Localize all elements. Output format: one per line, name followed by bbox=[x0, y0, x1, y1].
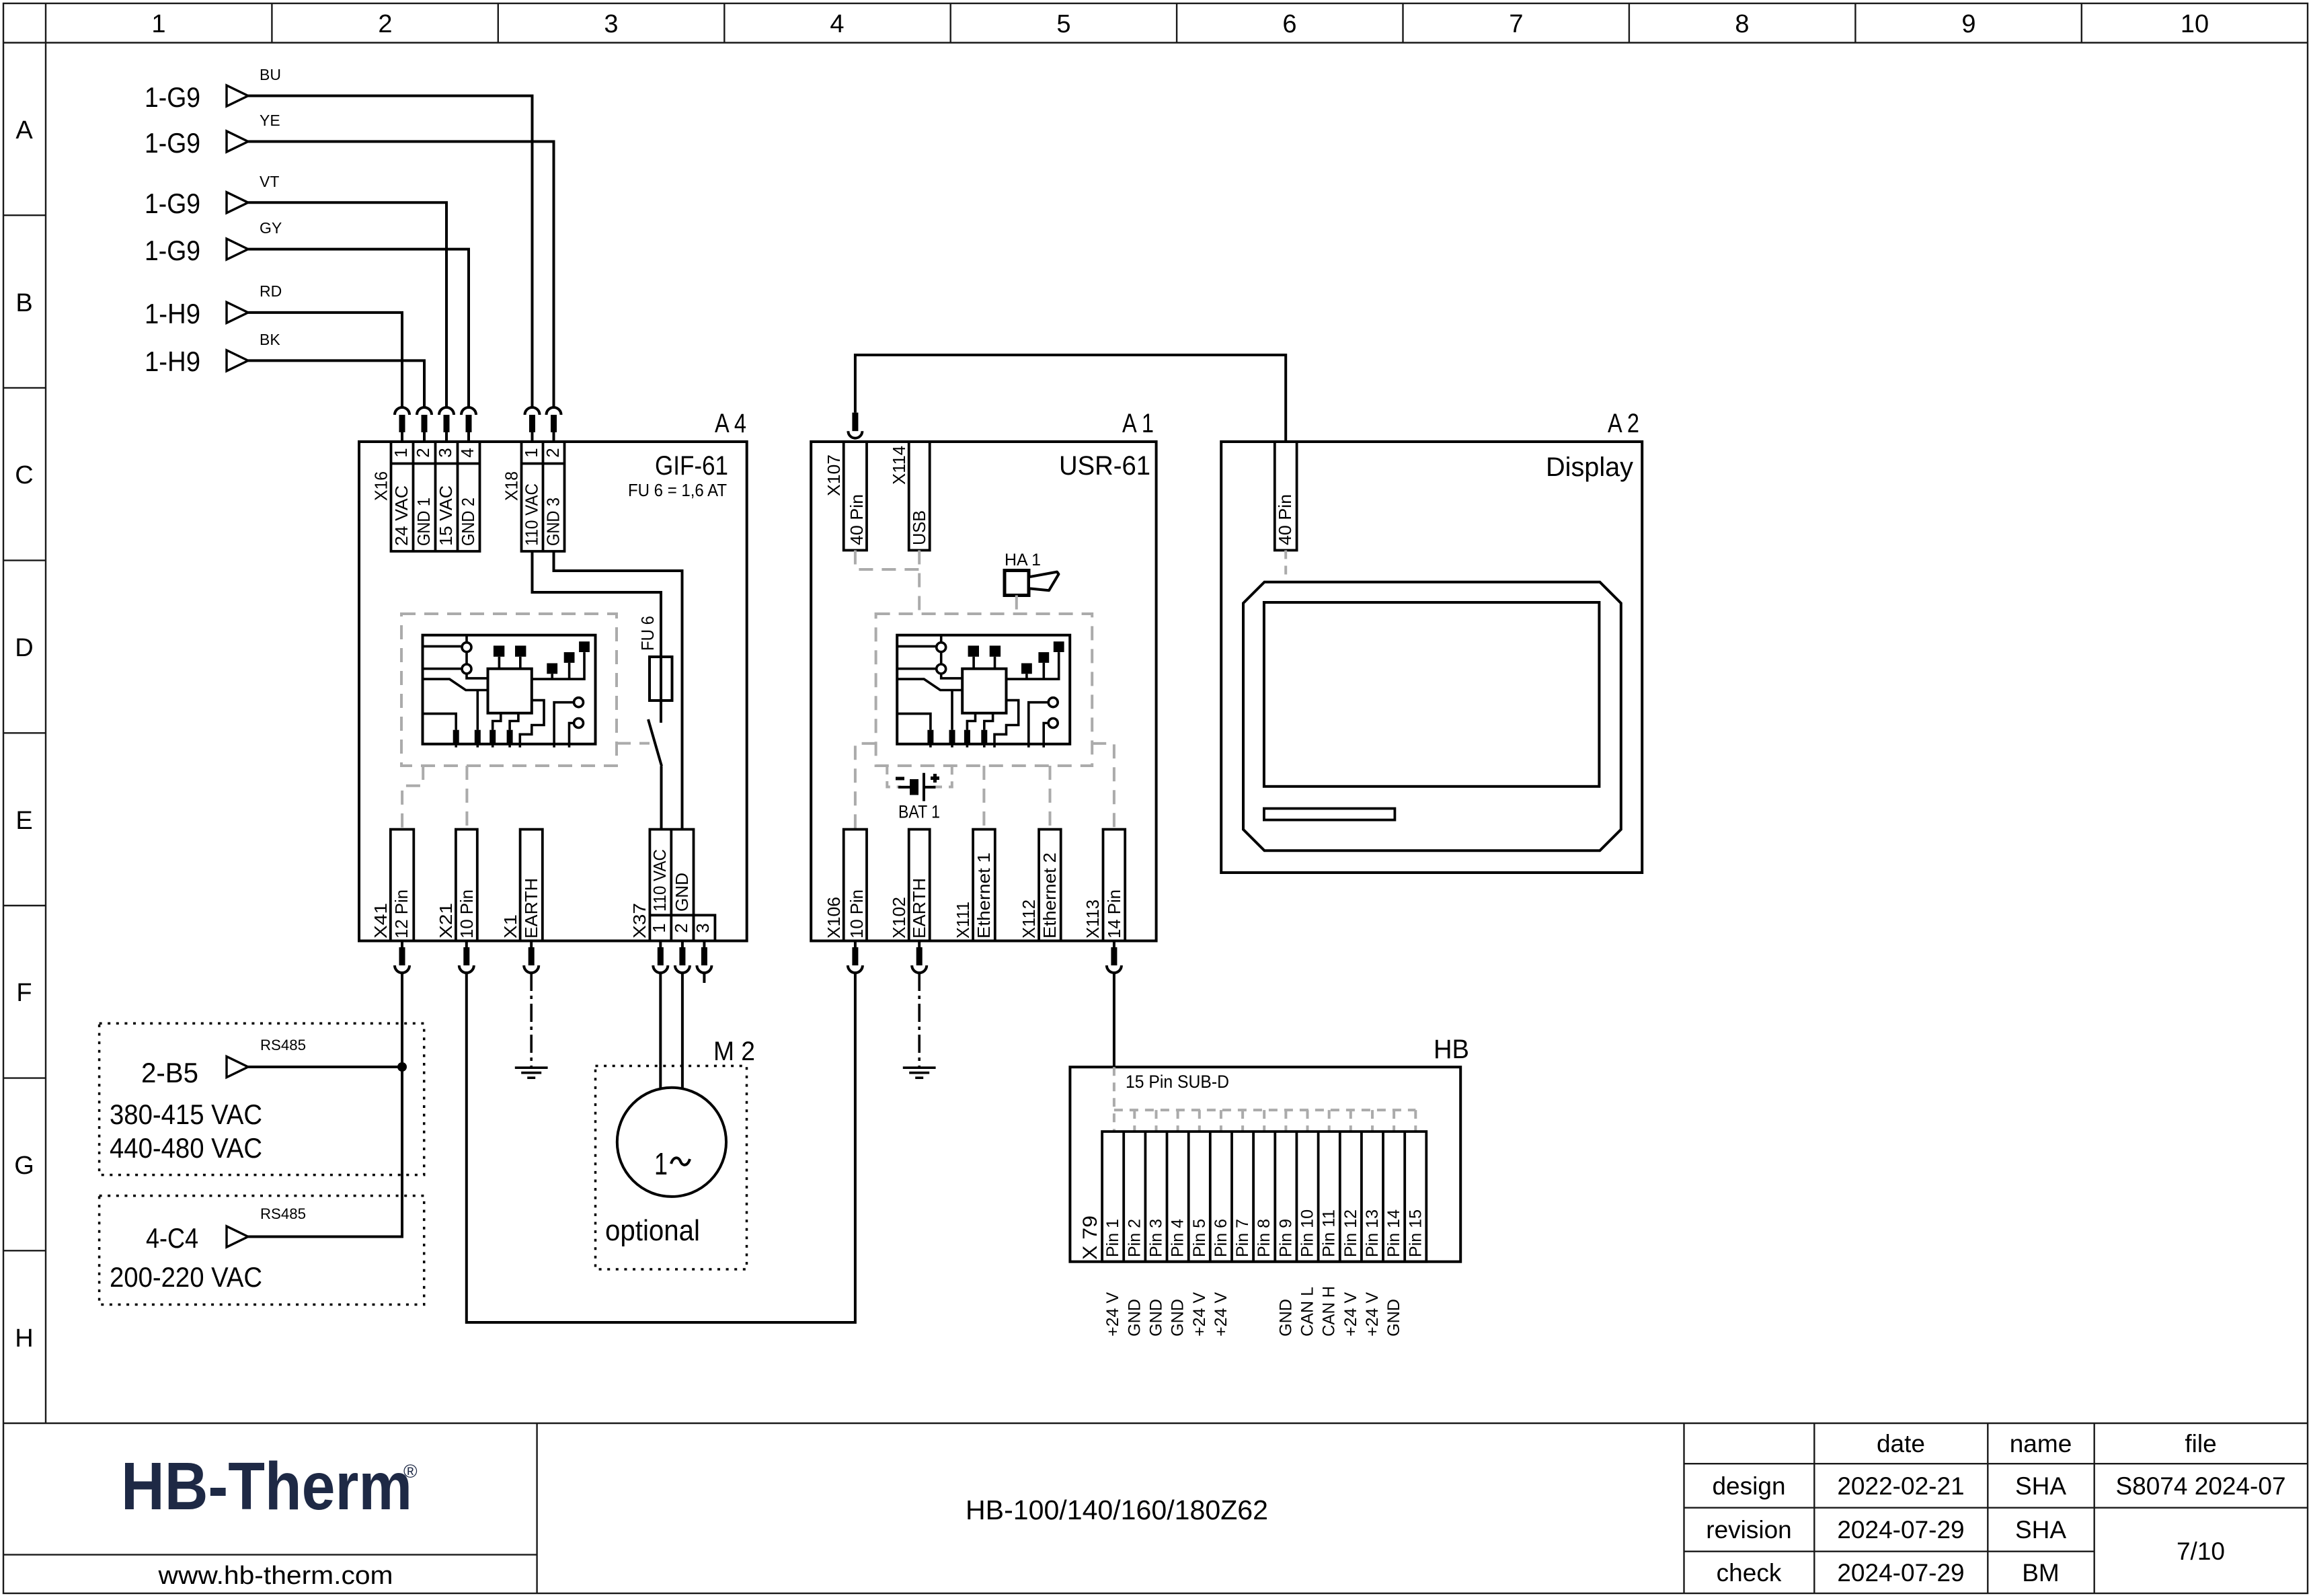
svg-text:EARTH: EARTH bbox=[521, 878, 541, 939]
svg-text:VT: VT bbox=[260, 173, 279, 190]
svg-text:S8074 2024-07: S8074 2024-07 bbox=[2115, 1472, 2285, 1500]
svg-text:Pin 11: Pin 11 bbox=[1320, 1209, 1339, 1257]
svg-text:9: 9 bbox=[1961, 10, 1975, 38]
svg-text:3: 3 bbox=[604, 10, 618, 38]
svg-text:3: 3 bbox=[693, 923, 713, 932]
svg-text:GND: GND bbox=[1384, 1299, 1403, 1336]
svg-text:+24 V: +24 V bbox=[1363, 1292, 1382, 1336]
svg-text:GND: GND bbox=[1169, 1299, 1187, 1336]
svg-text:E: E bbox=[15, 807, 32, 835]
svg-text:1: 1 bbox=[391, 448, 411, 457]
svg-text:SHA: SHA bbox=[2015, 1472, 2066, 1500]
svg-text:H: H bbox=[15, 1324, 33, 1353]
svg-text:+24 V: +24 V bbox=[1341, 1292, 1360, 1336]
svg-text:RS485: RS485 bbox=[260, 1037, 306, 1053]
svg-text:G: G bbox=[14, 1152, 34, 1180]
svg-text:B: B bbox=[15, 289, 32, 317]
svg-text:7/10: 7/10 bbox=[2177, 1538, 2225, 1565]
svg-text:1-G9: 1-G9 bbox=[145, 235, 200, 266]
svg-text:1: 1 bbox=[654, 1146, 668, 1181]
svg-text:Pin 13: Pin 13 bbox=[1363, 1209, 1382, 1257]
svg-text:X106: X106 bbox=[824, 897, 844, 939]
svg-text:380-415 VAC: 380-415 VAC bbox=[110, 1099, 262, 1130]
svg-text:Pin 1: Pin 1 bbox=[1103, 1219, 1122, 1257]
svg-text:2024-07-29: 2024-07-29 bbox=[1837, 1516, 1964, 1544]
svg-text:X1: X1 bbox=[500, 914, 520, 939]
svg-text:Pin 14: Pin 14 bbox=[1384, 1209, 1403, 1257]
svg-text:Pin 12: Pin 12 bbox=[1341, 1209, 1360, 1257]
svg-text:2022-02-21: 2022-02-21 bbox=[1837, 1472, 1964, 1500]
svg-text:440-480 VAC: 440-480 VAC bbox=[110, 1132, 262, 1164]
svg-text:BAT 1: BAT 1 bbox=[898, 802, 940, 822]
svg-text:RD: RD bbox=[260, 282, 282, 300]
svg-text:200-220 VAC: 200-220 VAC bbox=[110, 1261, 262, 1293]
svg-text:GND: GND bbox=[1147, 1299, 1166, 1336]
svg-text:M 2: M 2 bbox=[713, 1037, 755, 1066]
svg-text:X111: X111 bbox=[953, 902, 973, 939]
svg-text:X 79: X 79 bbox=[1079, 1215, 1101, 1260]
svg-text:6: 6 bbox=[1282, 10, 1296, 38]
svg-text:X37: X37 bbox=[629, 903, 650, 939]
svg-text:GIF-61: GIF-61 bbox=[655, 451, 728, 481]
svg-text:optional: optional bbox=[605, 1214, 700, 1247]
svg-text:Pin 6: Pin 6 bbox=[1212, 1219, 1230, 1257]
svg-text:Ethernet 2: Ethernet 2 bbox=[1040, 852, 1060, 939]
svg-text:revision: revision bbox=[1706, 1516, 1792, 1544]
svg-text:4: 4 bbox=[830, 10, 844, 38]
svg-text:10 Pin: 10 Pin bbox=[457, 889, 477, 939]
svg-text:HB: HB bbox=[1434, 1035, 1469, 1064]
svg-text:X112: X112 bbox=[1019, 900, 1039, 939]
svg-text:GND 1: GND 1 bbox=[414, 497, 434, 546]
svg-text:D: D bbox=[15, 634, 33, 662]
svg-text:+24 V: +24 V bbox=[1103, 1292, 1122, 1336]
svg-text:1-H9: 1-H9 bbox=[145, 346, 200, 377]
svg-text:name: name bbox=[2010, 1430, 2072, 1458]
svg-text:GND: GND bbox=[1276, 1299, 1295, 1336]
svg-text:2: 2 bbox=[671, 923, 691, 932]
svg-text:Pin 10: Pin 10 bbox=[1298, 1209, 1317, 1257]
svg-text:design: design bbox=[1712, 1472, 1785, 1500]
svg-text:110 VAC: 110 VAC bbox=[522, 483, 542, 546]
svg-text:GND 2: GND 2 bbox=[458, 497, 478, 546]
svg-text:1-G9: 1-G9 bbox=[145, 188, 200, 219]
svg-text:F: F bbox=[16, 979, 32, 1007]
svg-text:10: 10 bbox=[2181, 10, 2209, 38]
svg-text:EARTH: EARTH bbox=[909, 878, 929, 939]
svg-text:date: date bbox=[1877, 1430, 1925, 1458]
svg-text:1: 1 bbox=[521, 448, 541, 457]
svg-text:BK: BK bbox=[260, 331, 280, 348]
svg-text:BM: BM bbox=[2022, 1559, 2060, 1587]
svg-text:4: 4 bbox=[457, 448, 477, 457]
svg-text:USB: USB bbox=[909, 510, 929, 545]
svg-text:24 VAC: 24 VAC bbox=[391, 485, 412, 546]
svg-text:3: 3 bbox=[435, 448, 455, 457]
svg-text:1-H9: 1-H9 bbox=[145, 298, 200, 329]
svg-text:2: 2 bbox=[378, 10, 392, 38]
svg-text:40 Pin: 40 Pin bbox=[847, 494, 867, 545]
svg-text:www.hb-therm.com: www.hb-therm.com bbox=[157, 1562, 393, 1590]
svg-text:14 Pin: 14 Pin bbox=[1104, 889, 1124, 939]
svg-text:GND 3: GND 3 bbox=[543, 497, 563, 546]
svg-text:Pin 15: Pin 15 bbox=[1406, 1209, 1425, 1257]
svg-text:X18: X18 bbox=[502, 471, 522, 501]
svg-text:FU 6: FU 6 bbox=[637, 616, 658, 651]
svg-text:X21: X21 bbox=[436, 903, 456, 939]
svg-text:5: 5 bbox=[1056, 10, 1070, 38]
svg-text:CAN H: CAN H bbox=[1320, 1286, 1339, 1336]
svg-text:15 Pin SUB-D: 15 Pin SUB-D bbox=[1126, 1072, 1229, 1092]
svg-text:1-G9: 1-G9 bbox=[145, 127, 200, 159]
svg-text:X113: X113 bbox=[1083, 900, 1103, 939]
svg-text:HB-Therm: HB-Therm bbox=[121, 1449, 412, 1524]
svg-text:Pin 7: Pin 7 bbox=[1233, 1219, 1252, 1257]
svg-text:RS485: RS485 bbox=[260, 1205, 306, 1222]
svg-text:8: 8 bbox=[1735, 10, 1749, 38]
svg-text:BU: BU bbox=[260, 66, 281, 83]
svg-text:YE: YE bbox=[260, 112, 280, 129]
svg-text:Pin 2: Pin 2 bbox=[1125, 1219, 1144, 1257]
svg-text:®: ® bbox=[403, 1461, 418, 1482]
svg-text:2-B5: 2-B5 bbox=[141, 1057, 198, 1088]
svg-text:Pin 4: Pin 4 bbox=[1169, 1219, 1187, 1257]
svg-text:15 VAC: 15 VAC bbox=[436, 485, 456, 546]
svg-text:HA 1: HA 1 bbox=[1005, 551, 1041, 569]
svg-text:GY: GY bbox=[260, 219, 282, 237]
svg-text:10 Pin: 10 Pin bbox=[847, 889, 867, 939]
svg-text:2024-07-29: 2024-07-29 bbox=[1837, 1559, 1964, 1587]
svg-text:4-C4: 4-C4 bbox=[146, 1222, 198, 1254]
svg-text:GND: GND bbox=[1125, 1299, 1144, 1336]
svg-text:GND: GND bbox=[672, 873, 692, 912]
svg-text:+24 V: +24 V bbox=[1190, 1292, 1209, 1336]
svg-text:C: C bbox=[15, 461, 33, 489]
svg-text:1: 1 bbox=[649, 923, 669, 932]
svg-text:Pin 8: Pin 8 bbox=[1255, 1219, 1274, 1257]
svg-text:A 1: A 1 bbox=[1122, 409, 1154, 438]
svg-text:2: 2 bbox=[413, 448, 433, 457]
svg-text:Ethernet 1: Ethernet 1 bbox=[974, 852, 994, 939]
svg-text:SHA: SHA bbox=[2015, 1516, 2066, 1544]
svg-text:2: 2 bbox=[543, 448, 563, 457]
svg-text:USR-61: USR-61 bbox=[1059, 451, 1150, 481]
svg-text:Display: Display bbox=[1546, 452, 1633, 482]
svg-text:A 4: A 4 bbox=[715, 409, 746, 438]
svg-text:FU 6 = 1,6 AT: FU 6 = 1,6 AT bbox=[628, 480, 727, 500]
svg-text:40 Pin: 40 Pin bbox=[1275, 494, 1295, 545]
svg-text:X114: X114 bbox=[889, 446, 909, 485]
svg-text:X16: X16 bbox=[371, 471, 391, 501]
svg-text:Pin 9: Pin 9 bbox=[1276, 1219, 1295, 1257]
svg-text:A: A bbox=[15, 116, 33, 145]
svg-text:X107: X107 bbox=[824, 454, 844, 496]
svg-text:12 Pin: 12 Pin bbox=[391, 889, 412, 939]
svg-text:X41: X41 bbox=[370, 903, 391, 939]
svg-text:check: check bbox=[1717, 1559, 1782, 1587]
svg-text:X102: X102 bbox=[889, 897, 909, 939]
svg-text:+24 V: +24 V bbox=[1212, 1292, 1230, 1336]
svg-text:1: 1 bbox=[151, 10, 165, 38]
svg-text:file: file bbox=[2185, 1430, 2216, 1458]
svg-text:110 VAC: 110 VAC bbox=[650, 849, 670, 912]
svg-text:Pin 5: Pin 5 bbox=[1190, 1219, 1209, 1257]
svg-text:1-G9: 1-G9 bbox=[145, 81, 200, 113]
svg-text:HB-100/140/160/180Z62: HB-100/140/160/180Z62 bbox=[966, 1494, 1268, 1525]
svg-text:CAN L: CAN L bbox=[1298, 1287, 1317, 1336]
svg-text:A 2: A 2 bbox=[1608, 409, 1639, 438]
svg-text:7: 7 bbox=[1509, 10, 1523, 38]
svg-text:Pin 3: Pin 3 bbox=[1147, 1219, 1166, 1257]
